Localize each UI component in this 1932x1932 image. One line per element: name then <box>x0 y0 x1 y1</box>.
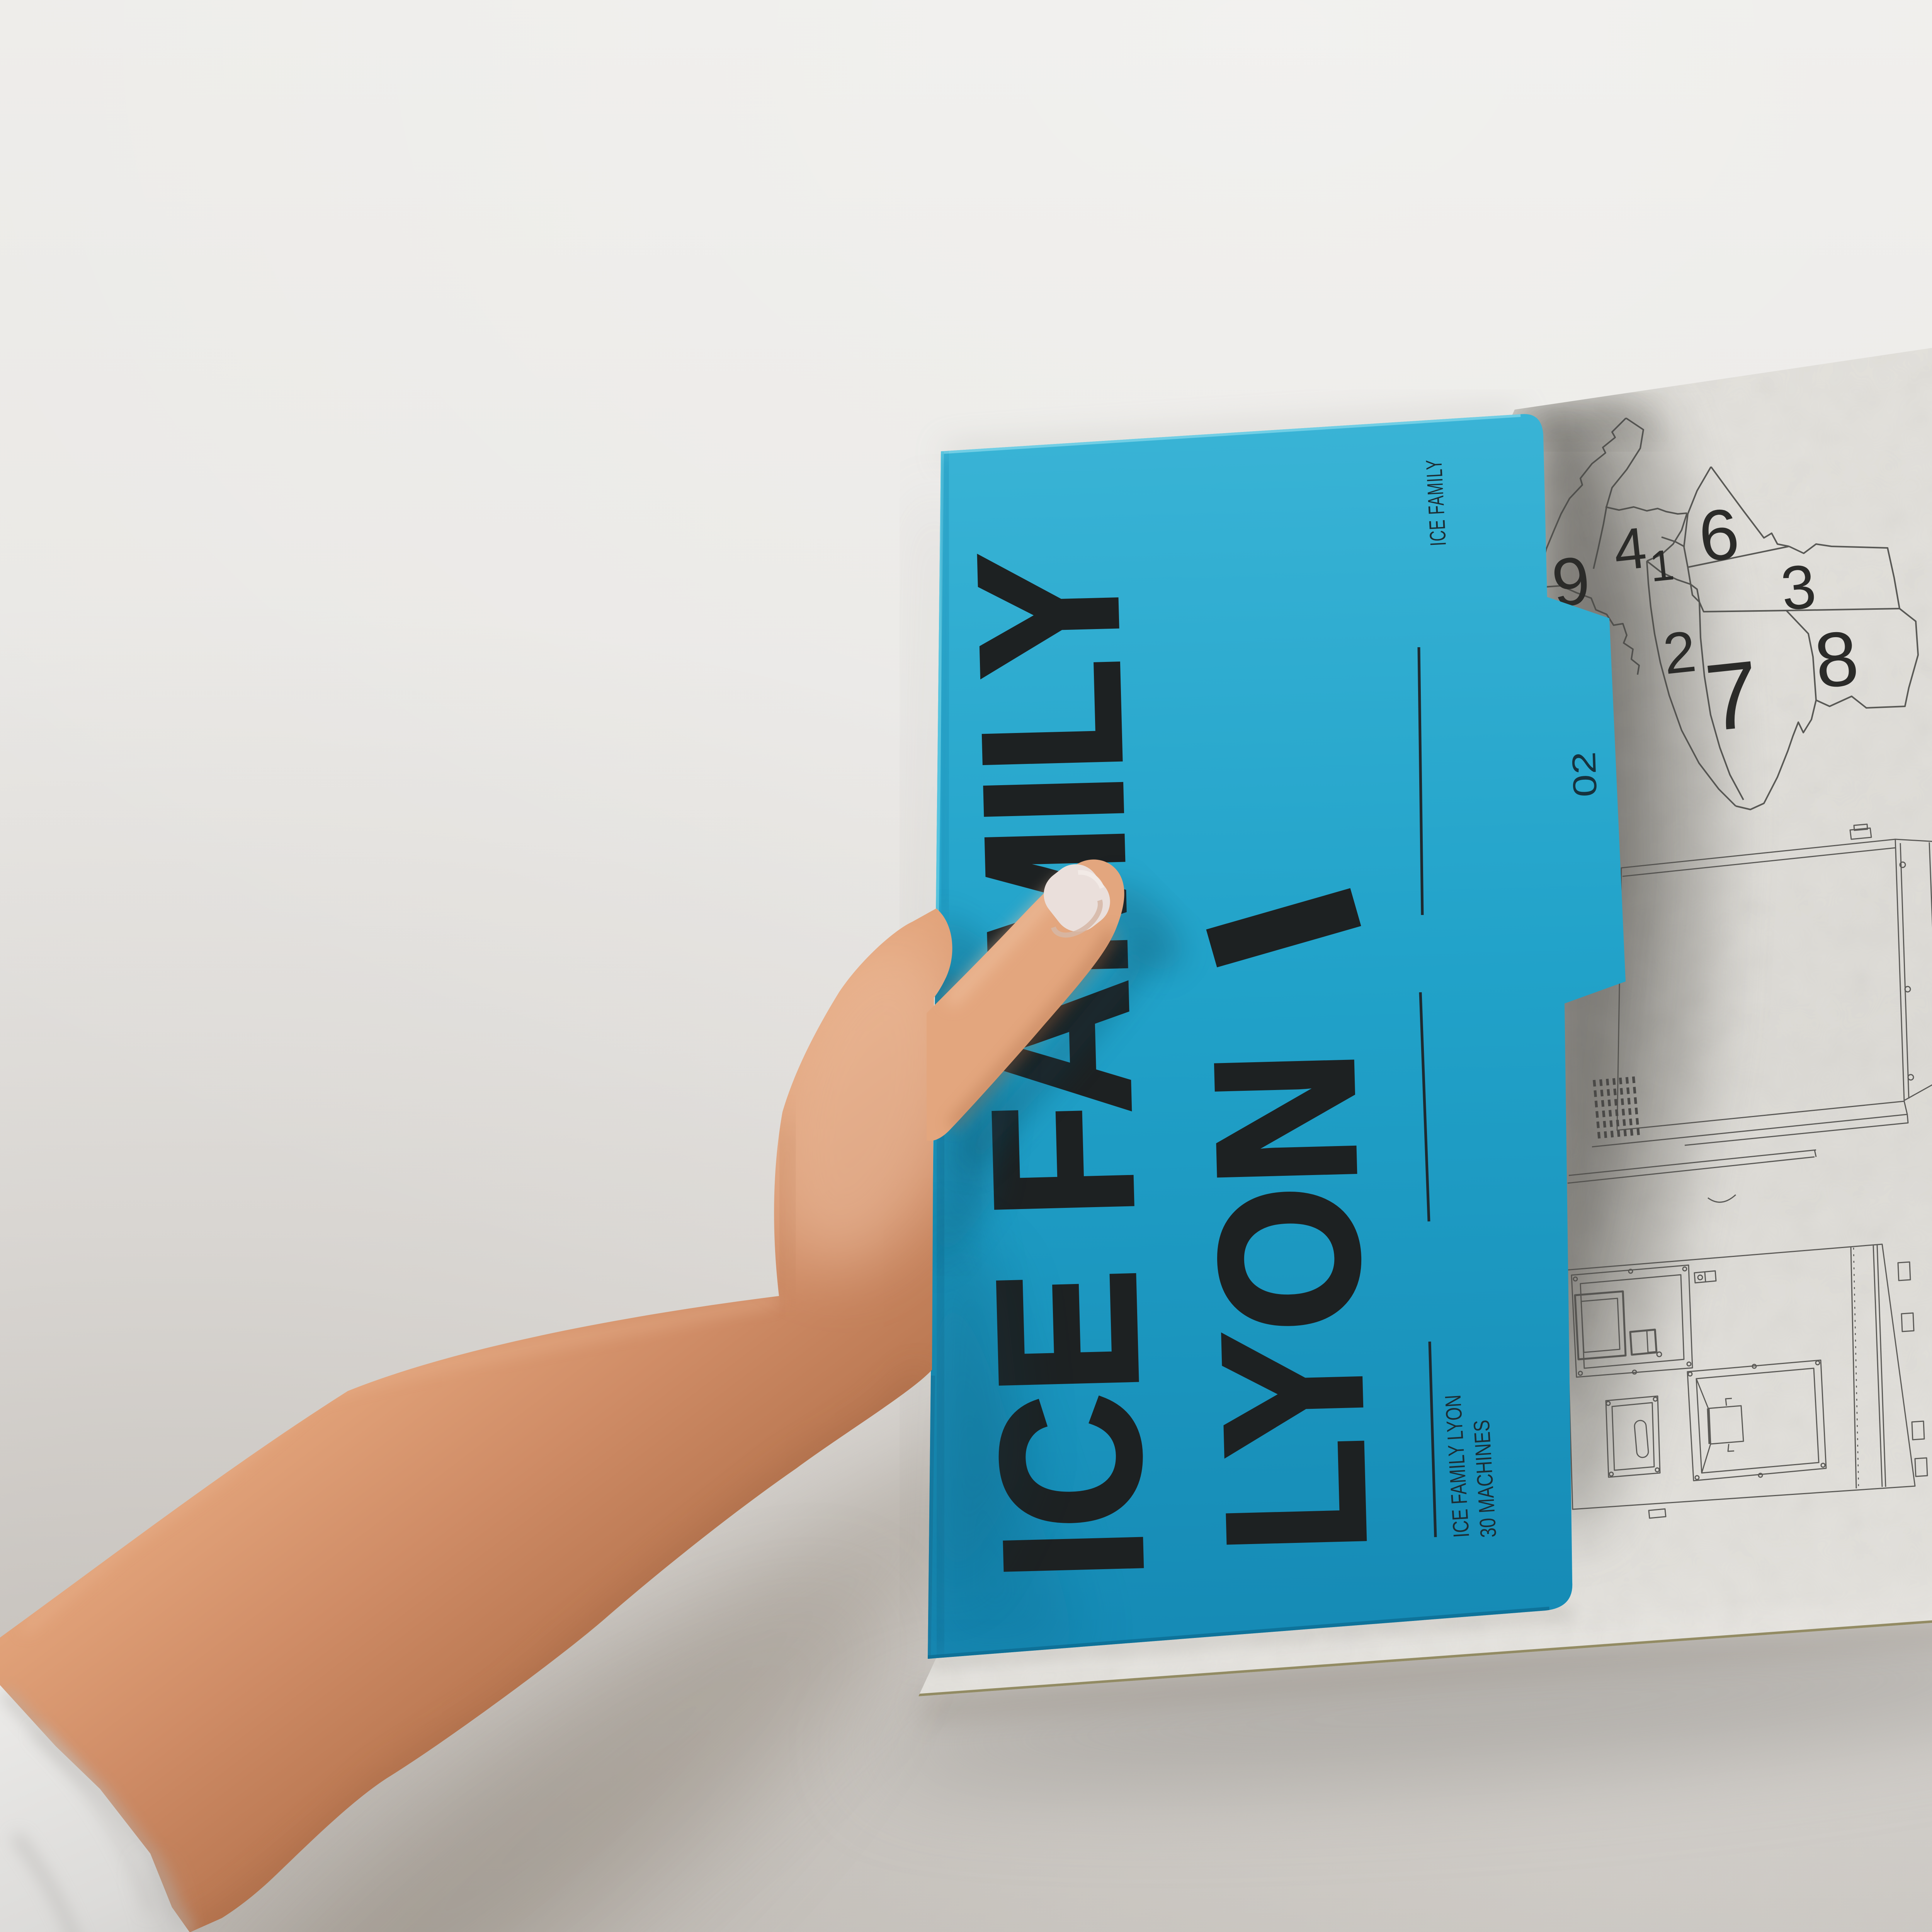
svg-text:1: 1 <box>1647 540 1676 591</box>
svg-text:2: 2 <box>1660 618 1699 686</box>
svg-text:3: 3 <box>1778 551 1819 623</box>
svg-text:ICE FAMILY: ICE FAMILY <box>1421 459 1451 547</box>
svg-text:7: 7 <box>1701 640 1764 751</box>
svg-text:8: 8 <box>1811 614 1862 704</box>
svg-text:4: 4 <box>1611 515 1650 583</box>
svg-text:LYON: LYON <box>1173 1048 1407 1556</box>
svg-text:02: 02 <box>1565 751 1604 798</box>
svg-text:6: 6 <box>1695 494 1743 577</box>
